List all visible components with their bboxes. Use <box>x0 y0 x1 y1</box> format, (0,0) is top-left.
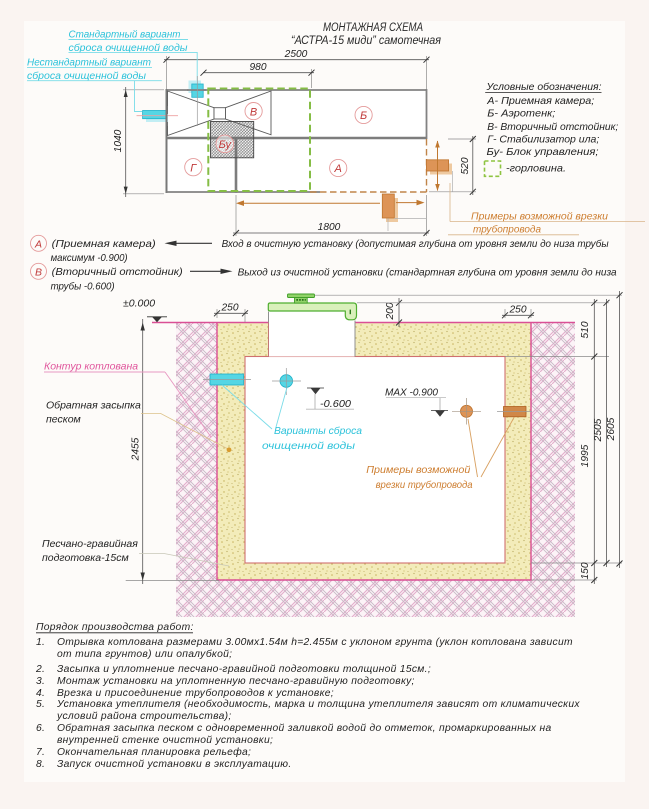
svg-text:трубы -0.600): трубы -0.600) <box>51 280 115 292</box>
svg-text:(Приемная камера): (Приемная камера) <box>52 238 156 250</box>
svg-text:1800: 1800 <box>318 222 341 233</box>
svg-text:Песчано-гравийная: Песчано-гравийная <box>42 538 138 550</box>
svg-text:А: А <box>34 238 42 250</box>
svg-text:1040: 1040 <box>113 129 124 152</box>
svg-text:внутренней стенке очистной уст: внутренней стенке очистной установки; <box>57 735 273 746</box>
svg-text:5.: 5. <box>36 699 45 710</box>
svg-text:2505: 2505 <box>593 418 604 442</box>
svg-text:Бу: Бу <box>219 139 233 151</box>
svg-text:Вход в очистную установку (доп: Вход в очистную установку (допустимая гл… <box>222 238 609 250</box>
svg-text:-0.600: -0.600 <box>320 398 351 410</box>
svg-text:Примеры возможной: Примеры возможной <box>366 464 470 476</box>
svg-text:Запуск очистной установки в эк: Запуск очистной установки в эксплуатацию… <box>57 759 291 770</box>
svg-text:Установка утеплителя (необходи: Установка утеплителя (необходимость, мар… <box>56 698 580 710</box>
svg-text:В: В <box>35 266 42 278</box>
svg-text:врезки трубопровода: врезки трубопровода <box>376 479 473 491</box>
svg-text:Примеры возможной врезки: Примеры возможной врезки <box>471 211 608 223</box>
svg-text:МАХ -0.900: МАХ -0.900 <box>385 387 438 399</box>
svg-text:Контур котлована: Контур котлована <box>44 361 138 373</box>
svg-text:8.: 8. <box>36 759 45 770</box>
svg-text:510: 510 <box>580 321 591 338</box>
svg-text:Засыпка и уплотнение песчано-г: Засыпка и уплотнение песчано-гравийной п… <box>57 664 431 675</box>
svg-text:(Вторичный отстойник): (Вторичный отстойник) <box>52 266 183 278</box>
svg-text:Монтаж установки на уплотненну: Монтаж установки на уплотненную песчано-… <box>57 676 415 687</box>
svg-text:от типа грунтов) или опалубкой: от типа грунтов) или опалубкой; <box>57 648 232 660</box>
svg-text:Бу- Блок управления;: Бу- Блок управления; <box>487 146 599 158</box>
svg-text:Выход из очистной установки (с: Выход из очистной установки (стандартная… <box>238 266 617 278</box>
svg-text:Обратная засыпка: Обратная засыпка <box>46 400 141 412</box>
svg-text:максимум -0.900): максимум -0.900) <box>51 252 128 264</box>
svg-text:подготовка-15см: подготовка-15см <box>42 552 129 564</box>
svg-text:“АСТРА-15 миди” самотечная: “АСТРА-15 миди” самотечная <box>291 35 441 47</box>
svg-text:В: В <box>250 106 257 118</box>
svg-text:А: А <box>334 163 342 175</box>
svg-text:МОНТАЖНАЯ СХЕМА: МОНТАЖНАЯ СХЕМА <box>323 22 423 34</box>
svg-text:Порядок производства работ:: Порядок производства работ: <box>36 621 194 633</box>
svg-text:±0.000: ±0.000 <box>123 298 155 310</box>
svg-text:Обратная засыпка песком с одно: Обратная засыпка песком с одновременной … <box>57 722 552 734</box>
svg-text:Отрывка котлована размерами 3.: Отрывка котлована размерами 3.00мх1.54м … <box>57 637 573 648</box>
svg-text:-горловина.: -горловина. <box>506 163 566 175</box>
svg-text:1995: 1995 <box>580 444 591 467</box>
svg-text:7.: 7. <box>36 747 45 758</box>
svg-text:2500: 2500 <box>284 49 308 60</box>
svg-text:условий района строительства);: условий района строительства); <box>56 711 232 722</box>
svg-text:сброса очищенной воды: сброса очищенной воды <box>27 70 147 82</box>
svg-text:4.: 4. <box>36 688 45 699</box>
svg-text:В- Вторичный отстойник;: В- Вторичный отстойник; <box>487 121 618 133</box>
svg-text:Условные обозначения:: Условные обозначения: <box>486 81 602 93</box>
svg-text:150: 150 <box>580 562 591 579</box>
svg-text:Варианты сброса: Варианты сброса <box>274 425 362 437</box>
svg-text:Врезка и присоединение трубопр: Врезка и присоединение трубопроводов к у… <box>57 687 334 699</box>
svg-text:Б: Б <box>360 110 367 122</box>
svg-text:6.: 6. <box>36 723 45 734</box>
svg-text:3.: 3. <box>36 676 45 687</box>
svg-text:Б- Аэротенк;: Б- Аэротенк; <box>487 108 555 120</box>
svg-text:2455: 2455 <box>131 437 142 461</box>
svg-text:200: 200 <box>385 302 396 320</box>
svg-text:980: 980 <box>250 62 267 73</box>
svg-text:песком: песком <box>46 414 81 426</box>
svg-text:Окончательная планировка релье: Окончательная планировка рельефа; <box>57 746 251 758</box>
svg-text:Нестандартный вариант: Нестандартный вариант <box>27 58 151 69</box>
svg-text:Г: Г <box>190 162 197 174</box>
svg-text:250: 250 <box>509 305 527 316</box>
svg-text:2.: 2. <box>35 664 45 675</box>
svg-text:2605: 2605 <box>606 417 617 441</box>
svg-text:1.: 1. <box>36 637 45 648</box>
svg-text:Г- Стабилизатор ила;: Г- Стабилизатор ила; <box>487 134 599 146</box>
svg-text:520: 520 <box>460 157 471 174</box>
svg-text:трубопровода: трубопровода <box>473 224 541 236</box>
svg-text:А- Приемная камера;: А- Приемная камера; <box>486 95 594 107</box>
svg-text:250: 250 <box>221 303 239 314</box>
svg-text:очищенной воды: очищенной воды <box>262 440 355 452</box>
